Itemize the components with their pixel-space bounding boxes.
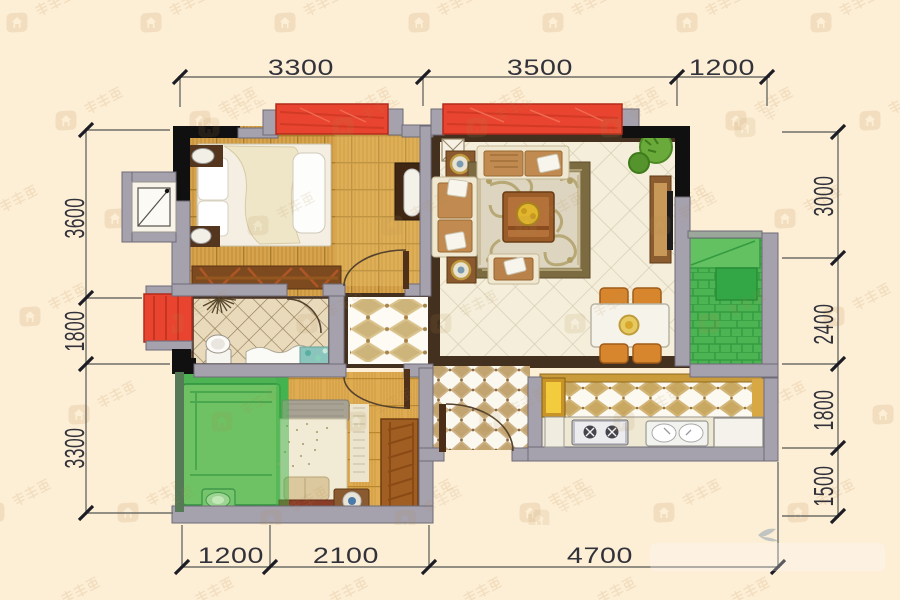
svg-text:4700: 4700 xyxy=(567,544,633,568)
svg-text:1200: 1200 xyxy=(689,56,755,80)
svg-text:3600: 3600 xyxy=(59,198,90,239)
svg-text:1500: 1500 xyxy=(808,466,839,507)
svg-text:1800: 1800 xyxy=(59,311,90,352)
svg-text:2400: 2400 xyxy=(808,304,839,345)
svg-text:3300: 3300 xyxy=(59,428,90,469)
svg-text:2100: 2100 xyxy=(313,544,379,568)
svg-text:3300: 3300 xyxy=(268,56,334,80)
svg-text:3000: 3000 xyxy=(808,176,839,217)
svg-text:1200: 1200 xyxy=(198,544,264,568)
svg-text:1800: 1800 xyxy=(808,390,839,431)
svg-text:3500: 3500 xyxy=(507,56,573,80)
